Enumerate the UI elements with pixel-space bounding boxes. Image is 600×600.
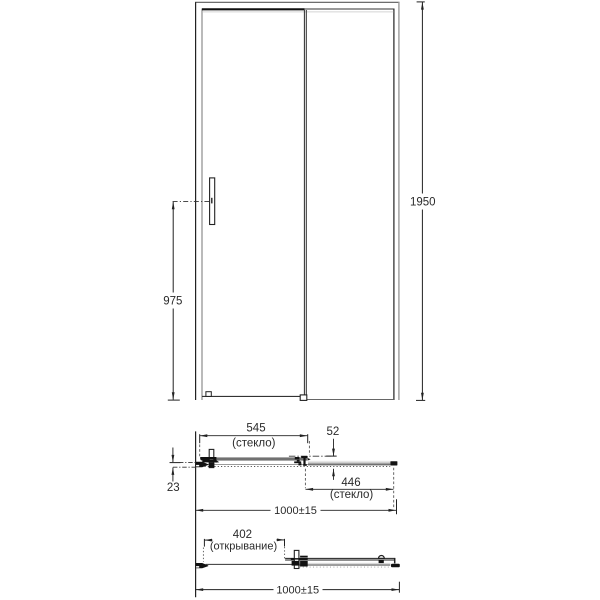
svg-text:(стекло): (стекло) bbox=[330, 489, 374, 501]
svg-text:975: 975 bbox=[163, 296, 182, 308]
svg-text:402: 402 bbox=[233, 529, 252, 541]
svg-text:(стекло): (стекло) bbox=[232, 437, 276, 449]
svg-text:(открывание): (открывание) bbox=[210, 541, 277, 553]
svg-text:23: 23 bbox=[167, 482, 180, 494]
svg-text:52: 52 bbox=[327, 426, 340, 438]
svg-text:545: 545 bbox=[246, 423, 265, 435]
svg-text:446: 446 bbox=[341, 477, 360, 489]
svg-text:1000±15: 1000±15 bbox=[276, 584, 319, 596]
svg-text:1000±15: 1000±15 bbox=[274, 505, 317, 517]
svg-text:1950: 1950 bbox=[410, 197, 436, 209]
